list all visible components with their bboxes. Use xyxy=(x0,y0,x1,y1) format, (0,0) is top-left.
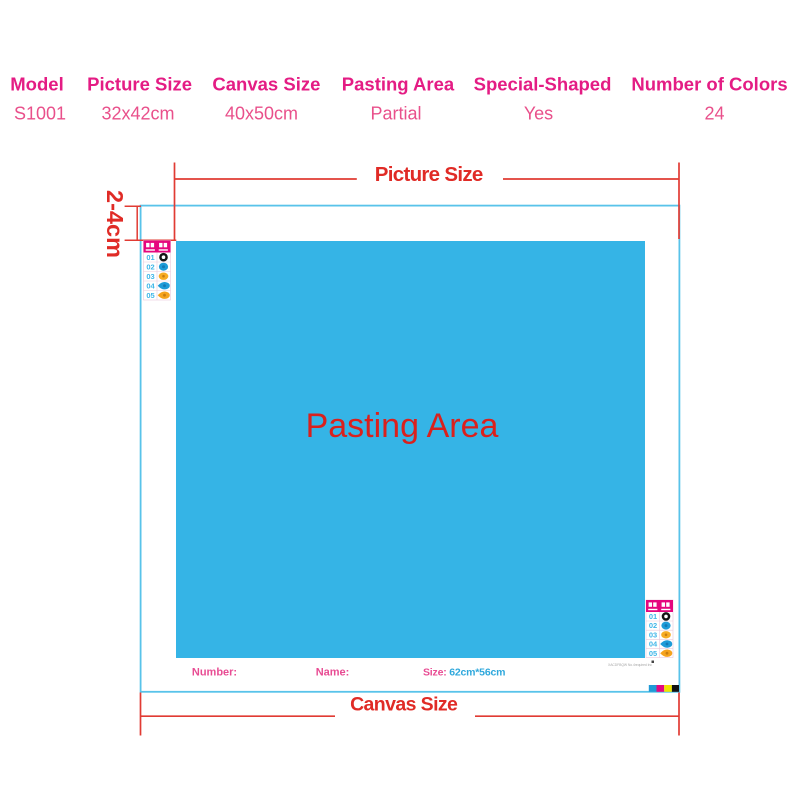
svg-text:Yes: Yes xyxy=(524,104,553,124)
svg-text:04: 04 xyxy=(146,281,155,290)
svg-text:04: 04 xyxy=(649,640,658,649)
svg-text:05: 05 xyxy=(146,291,154,300)
svg-text:Special-Shaped: Special-Shaped xyxy=(474,74,612,95)
svg-text:Size: 62cm*56cm: Size: 62cm*56cm xyxy=(423,667,505,679)
svg-text:24: 24 xyxy=(704,104,724,124)
svg-text:Canvas Size: Canvas Size xyxy=(350,694,458,716)
svg-text:02: 02 xyxy=(146,262,154,271)
svg-text:Name:: Name: xyxy=(316,667,350,679)
svg-text:40x50cm: 40x50cm xyxy=(225,104,298,124)
svg-text:02: 02 xyxy=(649,621,657,630)
svg-text:01: 01 xyxy=(649,612,657,621)
svg-text:01: 01 xyxy=(146,253,154,262)
svg-text:Canvas Size: Canvas Size xyxy=(212,74,320,95)
svg-text:Number:: Number: xyxy=(192,667,237,679)
svg-text:S1001: S1001 xyxy=(14,104,66,124)
svg-text:XACDFBQW No.4required Inc: XACDFBQW No.4required Inc xyxy=(608,663,652,667)
svg-text:03: 03 xyxy=(146,272,154,281)
svg-text:05: 05 xyxy=(649,649,657,658)
svg-text:Pasting Area: Pasting Area xyxy=(342,74,455,95)
svg-text:Number of Colors: Number of Colors xyxy=(631,74,787,95)
svg-text:32x42cm: 32x42cm xyxy=(101,104,174,124)
svg-text:03: 03 xyxy=(649,630,657,639)
svg-text:Picture Size: Picture Size xyxy=(375,163,483,186)
svg-text:2-4cm: 2-4cm xyxy=(102,190,128,258)
svg-text:Pasting Area: Pasting Area xyxy=(306,407,499,445)
svg-text:Partial: Partial xyxy=(370,104,421,124)
svg-text:Model: Model xyxy=(10,74,63,95)
svg-text:Picture Size: Picture Size xyxy=(87,74,192,95)
